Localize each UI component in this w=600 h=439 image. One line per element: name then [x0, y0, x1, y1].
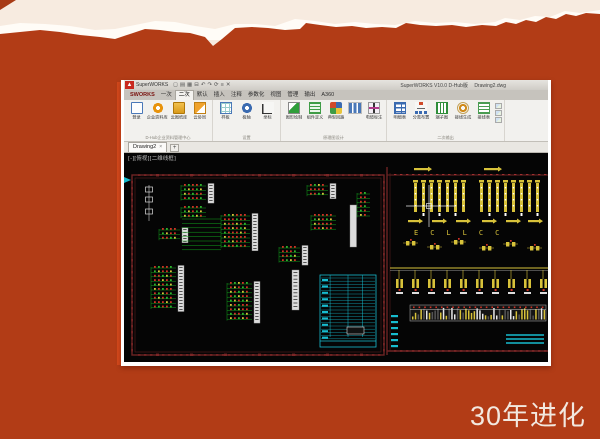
ribbon-button-label: 分类布置 — [412, 115, 429, 120]
generate-icon — [457, 102, 469, 114]
ribbon-button-样板[interactable]: 样板 — [215, 102, 236, 120]
ribbon-button-典型回路[interactable]: 典型回路 — [325, 102, 346, 120]
ribbon-tab-注释[interactable]: 注释 — [228, 91, 245, 100]
save-icon[interactable]: ▦ — [187, 82, 192, 88]
ribbon-button-云协同[interactable]: 云协同 — [189, 102, 210, 120]
torn-paper-edge — [0, 0, 600, 60]
ribbon-group: 明细表分类布置端子图接线生成接线表二次输出 — [387, 100, 505, 141]
ribbon-group-items: 明细表分类布置端子图接线生成接线表 — [389, 101, 502, 134]
ribbon-group-label: 二次输出 — [394, 134, 498, 140]
ribbon-group: 样板极轴坐标设置 — [213, 100, 281, 141]
ribbon-tab-参数化[interactable]: 参数化 — [245, 91, 268, 100]
slide-caption: 30年进化 — [470, 394, 586, 433]
ribbon-tab-管理[interactable]: 管理 — [284, 91, 301, 100]
ribbon-button-图形绘制[interactable]: 图形绘制 — [283, 102, 304, 120]
mini-button-icon[interactable] — [495, 103, 502, 109]
app-version: SuperWORKS V10.0 D-Hub版 — [400, 83, 468, 89]
app-name: SuperWORKS — [136, 82, 168, 88]
document-tab-bar: Drawing2×+ — [124, 142, 548, 153]
ribbon-button-明细表[interactable]: 明细表 — [389, 102, 410, 120]
ribbon-group-items: 图形绘制组件定义典型回路电缆标注 — [283, 101, 384, 134]
new-icon[interactable]: ◻ — [173, 82, 178, 88]
ribbon-button-分类布置[interactable]: 分类布置 — [410, 102, 431, 120]
ribbon: 登录企业资料库云图纸库云协同D-Hub企业资料管理中心样板极轴坐标设置图形绘制组… — [124, 100, 548, 142]
cad-window: ▲ SuperWORKS ◻▤▦⊟↶↷⟳≡✕ SuperWORKS V10.0 … — [121, 80, 551, 366]
ribbon-group-label: D-Hub企业资料管理中心 — [129, 134, 206, 140]
folder-icon — [173, 102, 185, 114]
ribbon-button-label: 坐标 — [263, 115, 271, 120]
ribbon-button-极轴[interactable]: 极轴 — [236, 102, 257, 120]
ribbon-button-label: 接线表 — [477, 115, 489, 120]
ribbon-button-label: 图形绘制 — [285, 115, 302, 120]
ribbon-group-label: 设置 — [218, 134, 276, 140]
cable-icon — [368, 102, 380, 114]
login-icon — [131, 102, 143, 114]
ribbon-button-label: 云图纸库 — [170, 115, 187, 120]
ribbon-button-云图纸库[interactable]: 云图纸库 — [168, 102, 189, 120]
component-icon — [309, 102, 321, 114]
presentation-slide: ▲ SuperWORKS ◻▤▦⊟↶↷⟳≡✕ SuperWORKS V10.0 … — [0, 0, 600, 439]
ribbon-tab-一次[interactable]: 一次 — [158, 91, 175, 100]
ribbon-tab-插入[interactable]: 插入 — [211, 91, 228, 100]
doc-tab-label: Drawing2 — [133, 143, 156, 152]
mini-grid-icon — [348, 102, 362, 114]
new-doc-tab-button[interactable]: + — [170, 144, 179, 152]
mini-button-icon[interactable] — [495, 117, 502, 123]
ribbon-button-label: 登录 — [132, 115, 140, 120]
ribbon-tab-默认[interactable]: 默认 — [194, 91, 211, 100]
layers-icon[interactable]: ≡ — [221, 82, 224, 88]
axis-icon — [262, 102, 274, 114]
ribbon-tab-SWORKS[interactable]: SWORKS — [127, 91, 158, 100]
list-icon — [478, 102, 490, 114]
database-icon — [152, 102, 164, 114]
ribbon-tab-A360[interactable]: A360 — [318, 91, 337, 100]
doc-tab-Drawing2[interactable]: Drawing2× — [128, 142, 167, 152]
ribbon-mini-buttons[interactable] — [495, 103, 502, 124]
document-filename: Drawing2.dwg — [474, 83, 506, 89]
ribbon-button-label: 接线生成 — [454, 115, 471, 120]
cloud-icon — [194, 102, 206, 114]
draw-icon — [288, 102, 300, 114]
ribbon-button-label: 电缆标注 — [365, 115, 382, 120]
print-icon[interactable]: ⊟ — [194, 82, 199, 88]
terminal-icon — [436, 102, 448, 114]
window-title: SuperWORKS V10.0 D-Hub版 Drawing2.dwg — [400, 82, 506, 89]
ribbon-group-items: 样板极轴坐标 — [215, 101, 278, 134]
ribbon-tab-bar: SWORKS一次二次默认插入注释参数化视图管理输出A360 — [124, 90, 548, 100]
ribbon-group: 登录企业资料库云图纸库云协同D-Hub企业资料管理中心 — [124, 100, 213, 141]
ribbon-button-label: 明细表 — [393, 115, 405, 120]
loop-icon — [330, 102, 342, 114]
ribbon-group-label: 原理图设计 — [287, 134, 380, 140]
ribbon-tab-输出[interactable]: 输出 — [301, 91, 318, 100]
ribbon-button-label: 极轴 — [242, 115, 250, 120]
doc-tab-close-icon[interactable]: × — [159, 143, 162, 152]
open-icon[interactable]: ▤ — [180, 82, 185, 88]
ribbon-button-坐标[interactable]: 坐标 — [257, 102, 278, 120]
ribbon-button-label: 端子图 — [435, 115, 447, 120]
template-icon — [220, 102, 232, 114]
ribbon-button-label: 典型回路 — [327, 115, 344, 120]
table-icon — [394, 102, 406, 114]
ribbon-tab-二次[interactable]: 二次 — [175, 90, 194, 100]
ribbon-button-label: 企业资料库 — [147, 115, 168, 120]
drawing-canvas[interactable]: [-][俯视][二维线框]ECLLCC — [124, 153, 548, 362]
ribbon-button-企业资料库[interactable]: 企业资料库 — [147, 102, 168, 120]
mini-button-icon[interactable] — [495, 110, 502, 116]
refresh-icon[interactable]: ⟳ — [214, 82, 219, 88]
ribbon-button-label: 样板 — [221, 115, 229, 120]
polar-icon — [241, 102, 253, 114]
undo-icon[interactable]: ↶ — [201, 82, 206, 88]
ribbon-button-电缆标注[interactable]: 电缆标注 — [363, 102, 384, 120]
ribbon-group-items: 登录企业资料库云图纸库云协同 — [126, 101, 210, 134]
close-icon[interactable]: ✕ — [226, 82, 231, 88]
ribbon-button-组件定义[interactable]: 组件定义 — [304, 102, 325, 120]
redo-icon[interactable]: ↷ — [207, 82, 212, 88]
svg-text:ECLLCC: ECLLCC — [414, 229, 511, 237]
ribbon-button-接线表[interactable]: 接线表 — [473, 102, 494, 120]
ribbon-button-接线生成[interactable]: 接线生成 — [452, 102, 473, 120]
ribbon-tab-视图[interactable]: 视图 — [267, 91, 284, 100]
app-logo-icon: ▲ — [125, 81, 134, 89]
ribbon-group: 图形绘制组件定义典型回路电缆标注原理图设计 — [281, 100, 387, 141]
quick-access-toolbar: ◻▤▦⊟↶↷⟳≡✕ — [172, 81, 231, 90]
ribbon-button-label: 云协同 — [193, 115, 205, 120]
svg-text:[-][俯视][二维线框]: [-][俯视][二维线框] — [128, 154, 176, 162]
ribbon-button-mini-grid-icon[interactable] — [346, 102, 363, 115]
ribbon-button-端子图[interactable]: 端子图 — [431, 102, 452, 120]
ribbon-button-登录[interactable]: 登录 — [126, 102, 147, 120]
tree-icon — [415, 102, 427, 114]
ribbon-button-label: 组件定义 — [306, 115, 323, 120]
title-bar: ▲ SuperWORKS ◻▤▦⊟↶↷⟳≡✕ SuperWORKS V10.0 … — [124, 80, 548, 90]
